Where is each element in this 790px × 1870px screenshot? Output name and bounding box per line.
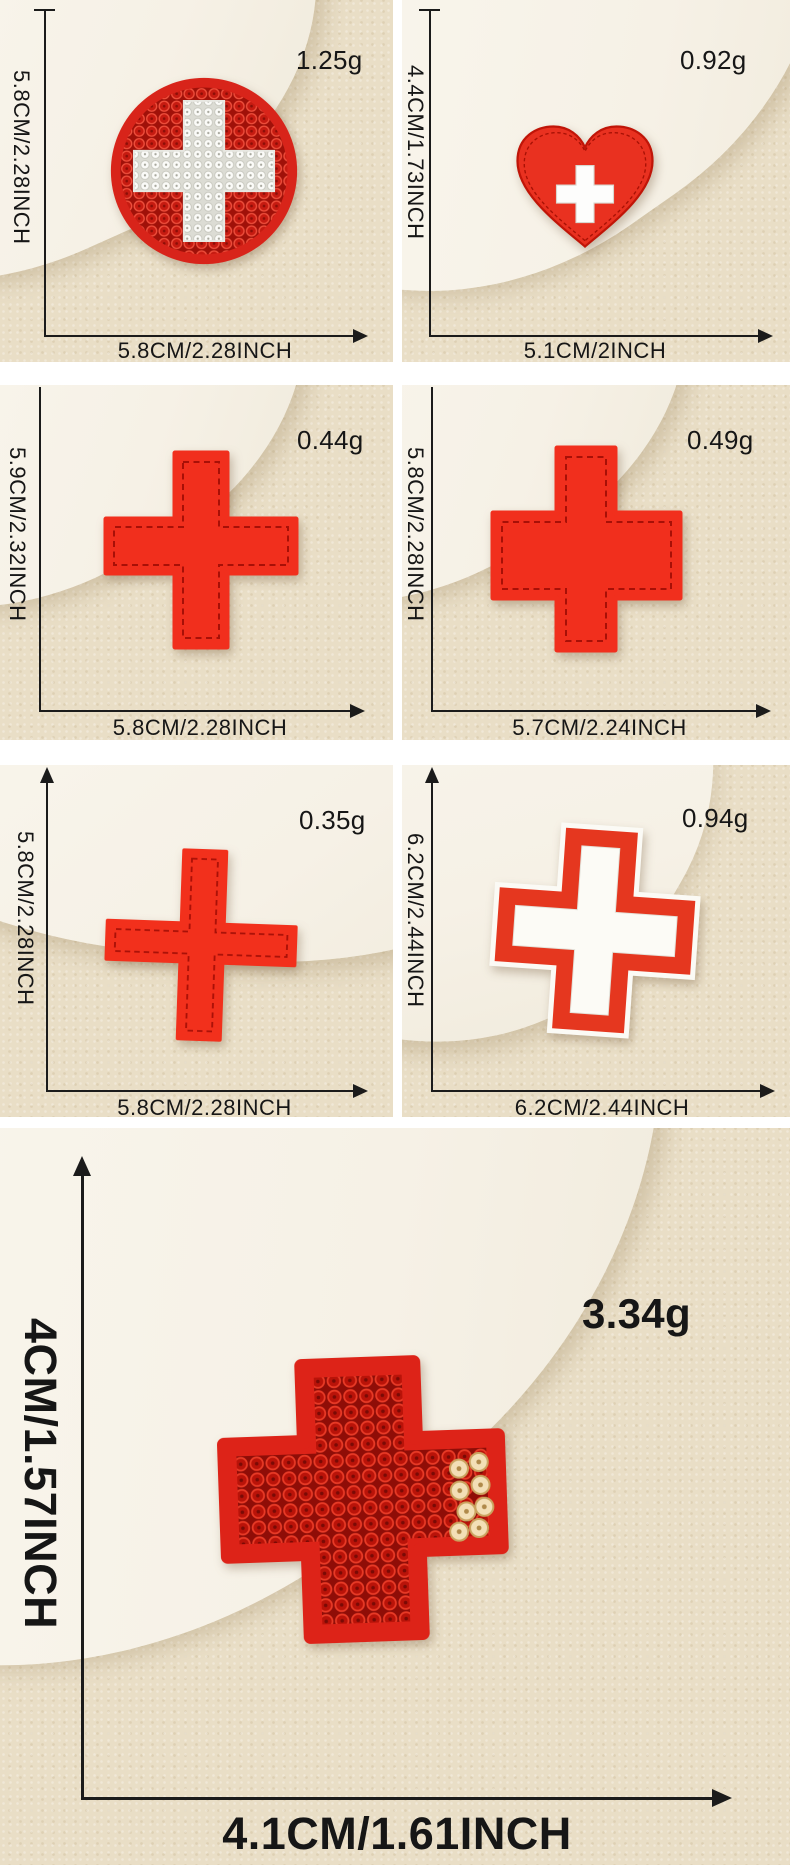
vertical-dimension-line (81, 1174, 84, 1797)
vertical-dimension-label: 5.8CM/2.28INCH (402, 447, 428, 622)
vertical-dimension-label: 5.8CM/2.28INCH (8, 70, 34, 245)
vertical-dimension-label: 5.9CM/2.32INCH (4, 447, 30, 622)
horizontal-dimension-label: 5.1CM/2INCH (430, 338, 760, 362)
vertical-dimension-line (431, 387, 433, 710)
white-cross-patch-image (483, 816, 707, 1045)
panel-white-cross: 0.94g 6.2CM/2.44INCH 6.2CM/2.44INCH (402, 765, 790, 1117)
vertical-dimension-line (44, 10, 46, 335)
horizontal-dimension-line (431, 710, 757, 712)
size-chart-sheet: 1.25g 5.8CM/2.28INCH 5.8CM/2.28INCH 0.92… (0, 0, 790, 1870)
round-sequin-cross-patch-image (108, 75, 300, 267)
weight-label: 1.25g (296, 45, 363, 76)
weight-label: 0.92g (680, 45, 747, 76)
horizontal-dimension-label: 5.8CM/2.28INCH (45, 338, 365, 362)
vertical-dimension-label: 4CM/1.57INCH (14, 1318, 66, 1629)
horizontal-dimension-line (431, 1090, 761, 1092)
horizontal-dimension-label: 4.1CM/1.61INCH (82, 1808, 712, 1860)
weight-label: 0.44g (297, 425, 364, 456)
vertical-dimension-label: 6.2CM/2.44INCH (402, 833, 428, 1008)
horizontal-dimension-line (39, 710, 351, 712)
panel-thin-red-cross: 0.35g 5.8CM/2.28INCH 5.8CM/2.28INCH (0, 765, 393, 1117)
red-cross-patch-image (490, 445, 683, 653)
weight-label: 0.35g (299, 805, 366, 836)
heart-cross-patch-image (510, 120, 660, 256)
horizontal-dimension-label: 5.8CM/2.28INCH (40, 715, 360, 740)
panel-red-cross-1: 0.44g 5.9CM/2.32INCH 5.8CM/2.28INCH (0, 385, 393, 740)
vertical-dimension-line (431, 781, 433, 1090)
arrow-right-icon (758, 329, 773, 343)
panel-heart-patch: 0.92g 4.4CM/1.73INCH 5.1CM/2INCH (402, 0, 790, 362)
weight-label: 0.94g (682, 803, 749, 834)
horizontal-dimension-line (429, 335, 759, 337)
panel-red-cross-2: 0.49g 5.8CM/2.28INCH 5.7CM/2.24INCH (402, 385, 790, 740)
horizontal-dimension-line (44, 335, 354, 337)
arrow-up-icon (73, 1156, 91, 1176)
weight-label: 0.49g (687, 425, 754, 456)
arrow-right-icon (712, 1789, 732, 1807)
horizontal-dimension-label: 6.2CM/2.44INCH (432, 1095, 772, 1117)
weight-label: 3.34g (582, 1290, 691, 1338)
horizontal-dimension-label: 5.7CM/2.24INCH (432, 715, 767, 740)
horizontal-dimension-line (46, 1090, 354, 1092)
vertical-dimension-line (429, 10, 431, 335)
panel-large-sequin-cross: 3.34g 4CM/1.57INCH 4.1CM/1.61INCH (0, 1128, 790, 1865)
horizontal-dimension-line (81, 1797, 714, 1800)
vertical-dimension-line (46, 781, 48, 1090)
vertical-dimension-line (39, 387, 41, 710)
vertical-dimension-label: 5.8CM/2.28INCH (12, 831, 38, 1006)
horizontal-dimension-label: 5.8CM/2.28INCH (47, 1095, 362, 1117)
large-sequin-cross-patch-image (213, 1351, 513, 1648)
panel-round-sequin-patch: 1.25g 5.8CM/2.28INCH 5.8CM/2.28INCH (0, 0, 393, 362)
red-cross-patch-image (103, 450, 299, 650)
thin-red-cross-patch-image (102, 846, 301, 1045)
vertical-dimension-label: 4.4CM/1.73INCH (402, 65, 428, 240)
